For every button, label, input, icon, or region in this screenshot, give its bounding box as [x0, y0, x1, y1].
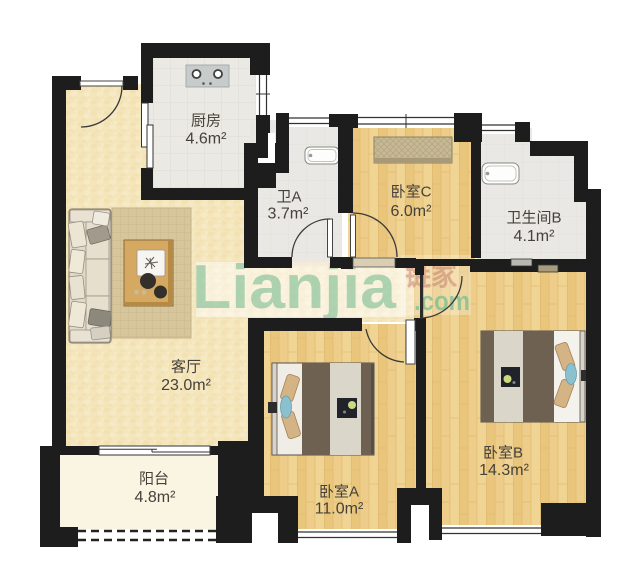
svg-text:卫A: 卫A: [276, 188, 301, 205]
svg-text:卫生间B: 卫生间B: [506, 209, 561, 226]
svg-text:卧室A: 卧室A: [319, 483, 359, 500]
svg-text:卧室C: 卧室C: [391, 183, 432, 200]
svg-text:4.8m²: 4.8m²: [135, 489, 177, 506]
svg-text:客厅: 客厅: [171, 358, 201, 375]
svg-text:11.0m²: 11.0m²: [315, 500, 364, 517]
svg-text:卧室B: 卧室B: [483, 444, 523, 461]
svg-text:23.0m²: 23.0m²: [161, 377, 211, 394]
svg-text:4.6m²: 4.6m²: [186, 130, 228, 147]
svg-text:厨房: 厨房: [191, 112, 221, 129]
svg-text:6.0m²: 6.0m²: [391, 203, 433, 220]
svg-text:14.3m²: 14.3m²: [479, 462, 529, 479]
svg-text:3.7m²: 3.7m²: [268, 205, 310, 222]
svg-text:阳台: 阳台: [139, 470, 169, 487]
svg-text:4.1m²: 4.1m²: [514, 228, 556, 245]
